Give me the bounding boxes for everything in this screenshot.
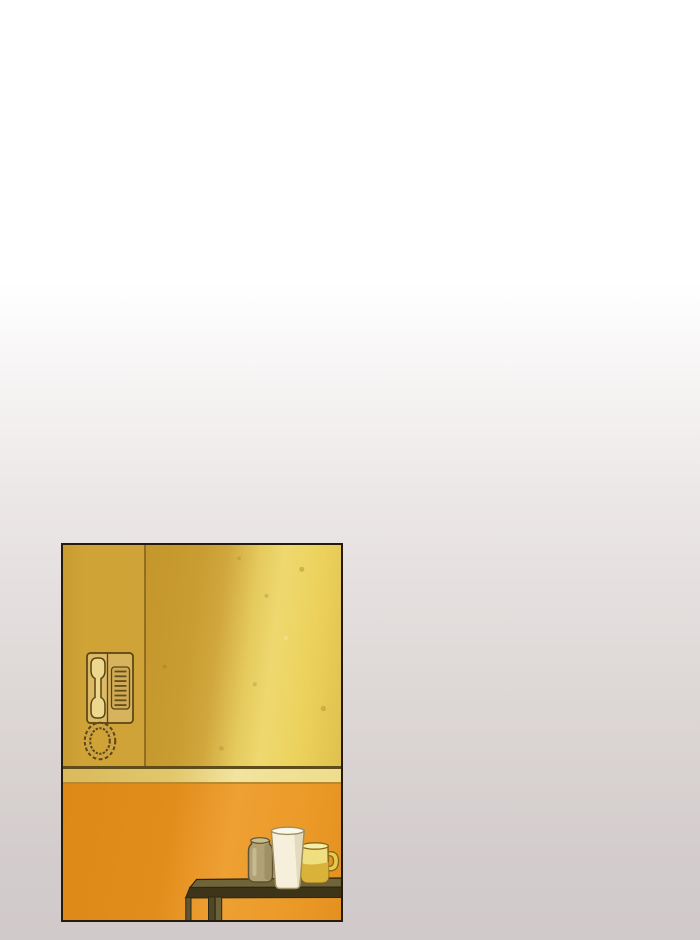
wall-seam-line [144,545,146,766]
intercom-speaker-grille [112,667,130,709]
page-background [0,0,700,940]
table-leg-back-a [208,897,215,921]
mug-rim [301,842,328,848]
jar-highlight [252,848,256,876]
comic-panel [61,543,343,922]
table-leg-back-b [215,897,222,921]
tall-cup-rim [271,827,303,834]
cups-on-table [244,824,340,892]
wall-section-right [145,545,341,766]
mug-body-lower [301,862,328,883]
table-leg-front-left [185,897,190,921]
jar-shade [264,844,271,880]
intercom-phone [81,648,143,764]
wall-molding [63,766,341,784]
jar-rim [250,837,269,843]
